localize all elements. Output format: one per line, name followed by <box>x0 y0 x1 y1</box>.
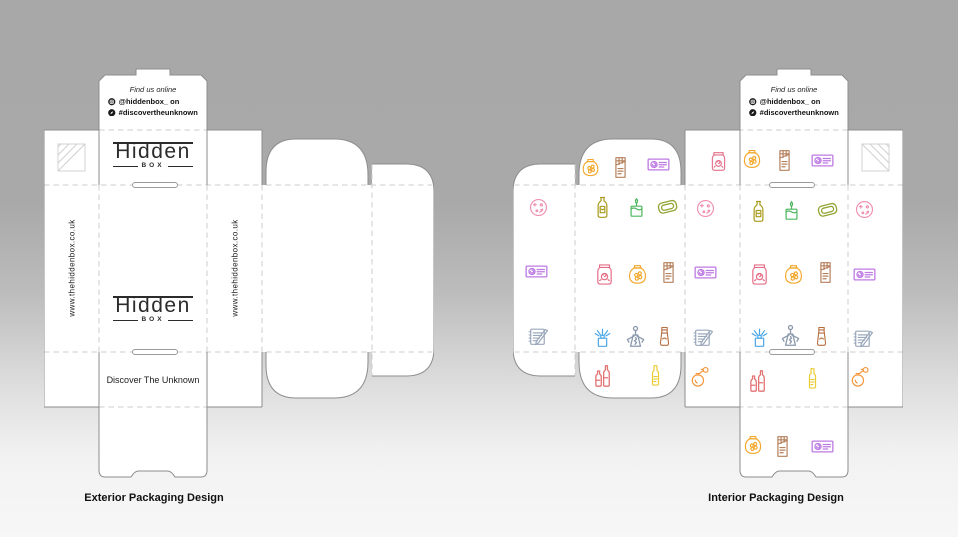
wine-bottles-icon <box>744 367 771 394</box>
logo-rule-right <box>168 166 193 167</box>
honey-pot-icon <box>741 434 765 458</box>
website-url-left: www.thehiddenbox.co.uk <box>67 219 76 316</box>
notebook-icon <box>526 324 551 349</box>
olive-oil-bottle-icon <box>746 199 771 224</box>
logo-rule-left <box>113 166 138 167</box>
chocolate-bar-icon <box>813 260 838 285</box>
yellow-bottle-icon <box>800 366 825 391</box>
logo-sub-text: BOX <box>141 163 164 170</box>
soap-bar-icon <box>814 196 841 223</box>
honey-pot-icon <box>781 263 806 288</box>
logo-rule-right <box>168 320 193 321</box>
reed-diffuser-icon <box>747 324 772 349</box>
instagram-handle: @hiddenbox_ on <box>119 98 180 106</box>
honey-pot-icon <box>579 157 602 180</box>
jam-jar-icon <box>747 262 772 287</box>
bath-bomb-icon <box>527 196 550 219</box>
hashtag-text: #discovertheunknown <box>119 109 198 117</box>
bath-bomb-icon <box>694 197 717 220</box>
lotion-tube-icon <box>810 325 833 348</box>
interior-dieline: Find us online @hiddenbox_ on #discovert… <box>513 68 903 480</box>
gift-voucher-icon <box>523 258 550 285</box>
chocolate-bar-icon <box>608 155 633 180</box>
chocolate-bar-icon <box>772 148 797 173</box>
perfume-atomizer-icon <box>848 364 873 389</box>
jam-jar-icon <box>592 262 617 287</box>
find-us-title: Find us online <box>130 85 177 94</box>
gift-voucher-icon <box>809 147 836 174</box>
gift-voucher-icon <box>809 433 836 460</box>
gift-voucher-icon <box>645 151 672 178</box>
honey-pot-icon <box>625 263 650 288</box>
corkscrew-icon <box>622 324 649 351</box>
wine-bottles-icon <box>589 362 616 389</box>
instagram-icon <box>108 98 116 106</box>
interior-caption: Interior Packaging Design <box>708 492 844 504</box>
logo-wordmark: Hidden <box>113 141 193 162</box>
logo-rule-left <box>113 320 138 321</box>
perfume-atomizer-icon <box>688 364 713 389</box>
tagline-text: Discover The Unknown <box>107 375 200 385</box>
corkscrew-icon <box>777 323 804 350</box>
gift-voucher-icon <box>692 259 719 286</box>
honey-pot-icon <box>740 148 764 172</box>
compass-icon <box>108 109 116 117</box>
chocolate-bar-icon <box>770 434 795 459</box>
website-url-right: www.thehiddenbox.co.uk <box>230 219 239 316</box>
exterior-lid-logo: Hidden BOX <box>99 142 207 170</box>
candle-icon <box>779 199 804 224</box>
candle-icon <box>624 196 649 221</box>
exterior-find-us-panel: Find us online @hiddenbox_ on #discovert… <box>99 75 207 129</box>
gift-voucher-icon <box>851 261 878 288</box>
olive-oil-bottle-icon <box>590 195 615 220</box>
lotion-tube-icon <box>653 325 676 348</box>
design-canvas: Find us online @hiddenbox_ on #discovert… <box>0 0 958 537</box>
interior-icon-layer <box>513 68 903 480</box>
exterior-dieline: Find us online @hiddenbox_ on #discovert… <box>44 68 434 480</box>
yellow-bottle-icon <box>643 363 668 388</box>
reed-diffuser-icon <box>590 324 615 349</box>
logo-sub-text: BOX <box>141 317 164 324</box>
soap-bar-icon <box>654 193 681 220</box>
chocolate-bar-icon <box>656 260 681 285</box>
exterior-front-logo: Hidden BOX <box>99 296 207 324</box>
jam-jar-icon <box>707 150 730 173</box>
notebook-icon <box>691 325 716 350</box>
exterior-caption: Exterior Packaging Design <box>84 492 223 504</box>
tagline-panel: Discover The Unknown <box>99 352 207 407</box>
logo-wordmark: Hidden <box>113 295 193 316</box>
bath-bomb-icon <box>853 198 876 221</box>
notebook-icon <box>851 326 876 351</box>
